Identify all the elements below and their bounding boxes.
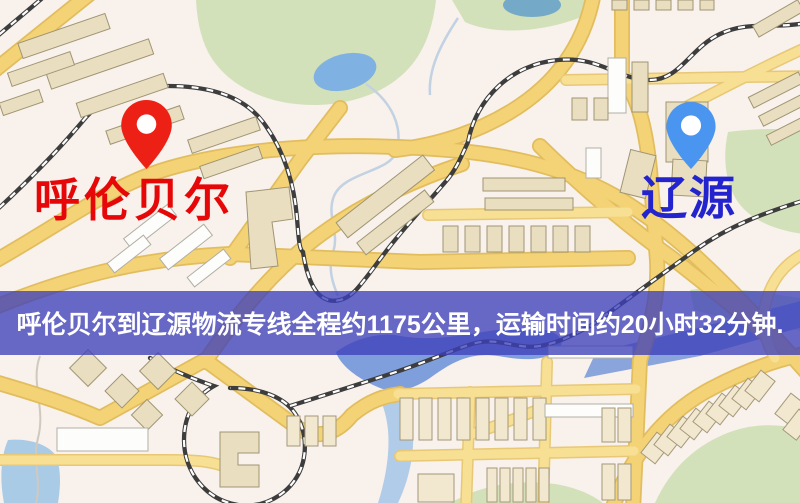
route-info-banner: 呼伦贝尔到辽源物流专线全程约1175公里，运输时间约20小时32分钟. xyxy=(0,291,800,355)
route-info-text: 呼伦贝尔到辽源物流专线全程约1175公里，运输时间约20小时32分钟. xyxy=(17,305,784,341)
destination-pin-icon[interactable] xyxy=(666,102,716,169)
map-screenshot: .rc{stroke:#e2bd5e;stroke-width:16;fill:… xyxy=(0,0,800,503)
origin-label: 呼伦贝尔 xyxy=(34,177,234,223)
destination-label: 辽源 xyxy=(641,175,737,221)
map-background: .rc{stroke:#e2bd5e;stroke-width:16;fill:… xyxy=(0,0,800,503)
origin-pin-icon[interactable] xyxy=(121,100,172,169)
